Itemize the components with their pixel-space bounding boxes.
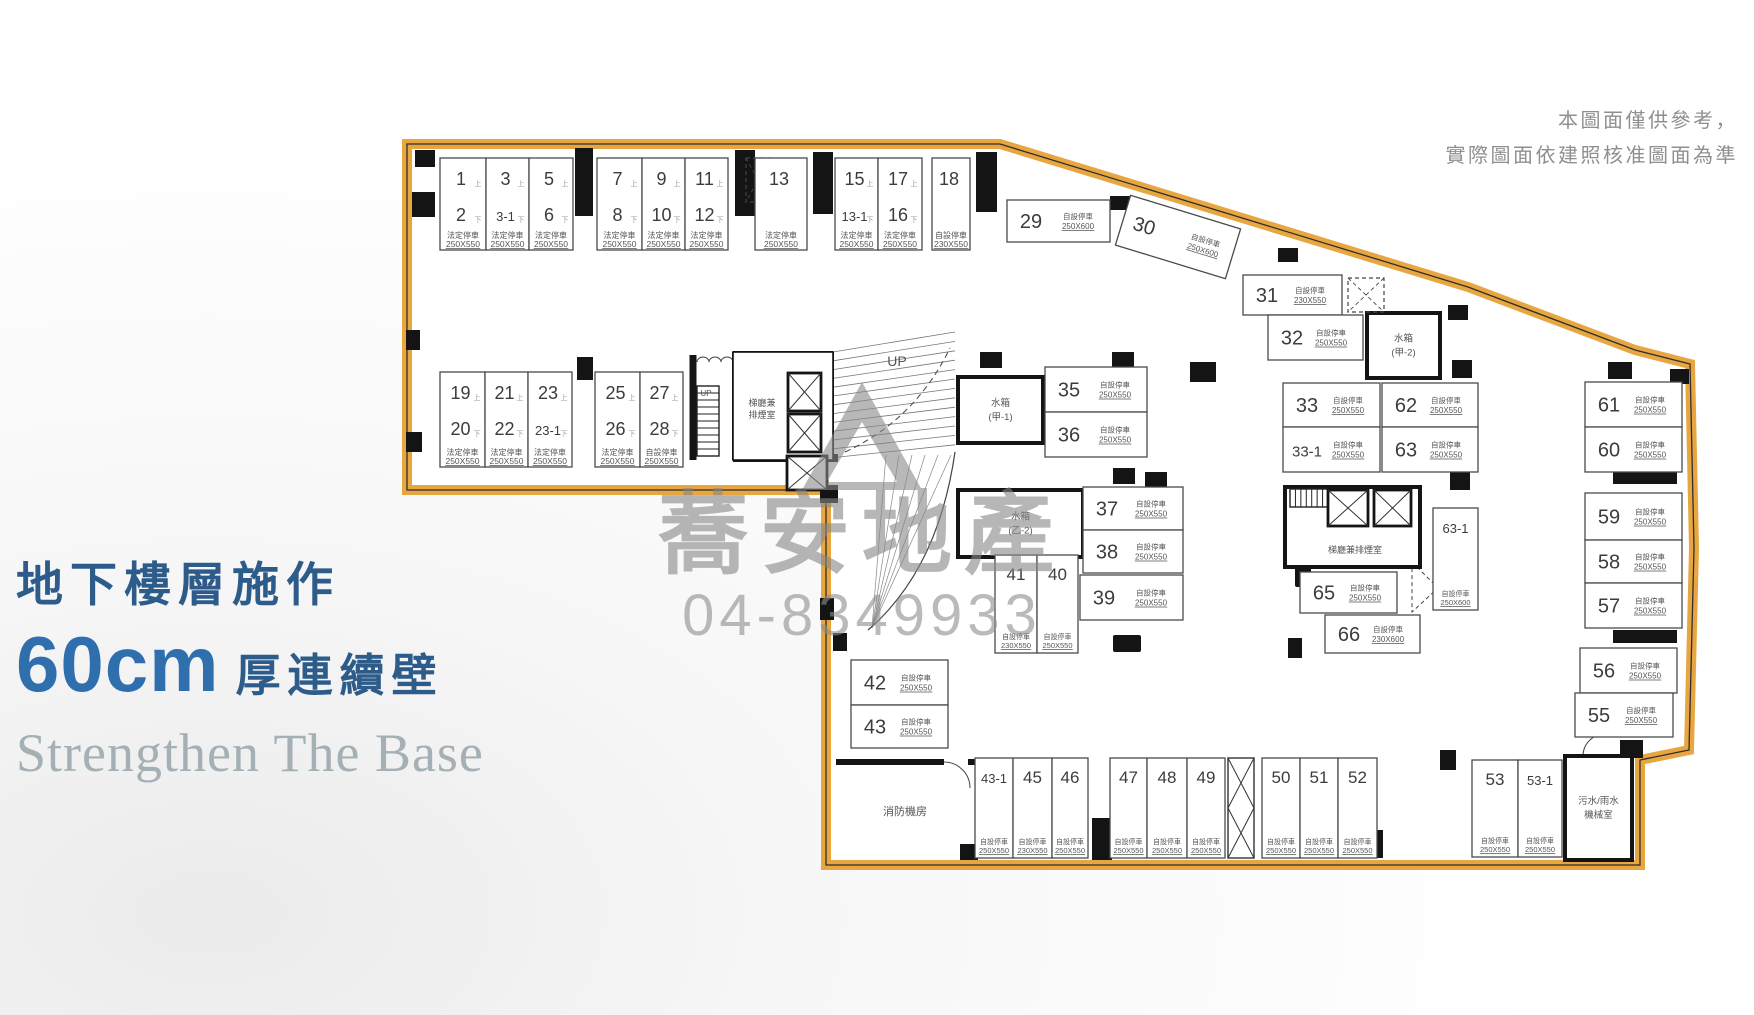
- svg-text:自設停車: 自設停車: [1635, 395, 1665, 405]
- svg-text:250X550: 250X550: [883, 239, 917, 249]
- svg-text:61: 61: [1598, 395, 1620, 417]
- stall-9-10: 9上10下法定停車250X550: [642, 158, 685, 250]
- svg-text:自設停車: 自設停車: [1063, 211, 1093, 221]
- room-label: 機械室: [1584, 809, 1613, 821]
- stall-5-6: 5上6下法定停車250X550: [529, 158, 573, 250]
- room-label: (甲-2): [1391, 348, 1415, 359]
- room-label: (甲-1): [988, 412, 1012, 423]
- svg-text:250X550: 250X550: [534, 239, 568, 249]
- svg-text:230X550: 230X550: [934, 239, 968, 249]
- svg-text:自設停車: 自設停車: [1044, 632, 1072, 641]
- stall-49: 49自設停車250X550: [1187, 758, 1225, 858]
- svg-text:上: 上: [474, 393, 481, 402]
- svg-text:上: 上: [475, 179, 482, 188]
- pillar: [735, 150, 755, 216]
- equipment-icon: [1113, 635, 1141, 652]
- svg-text:42: 42: [864, 673, 886, 695]
- stall-53: 53自設停車250X550: [1472, 760, 1518, 857]
- stall-46: 46自設停車250X550: [1052, 758, 1088, 858]
- svg-text:25: 25: [605, 383, 625, 403]
- svg-text:8: 8: [612, 205, 622, 225]
- svg-text:10: 10: [651, 205, 671, 225]
- stall-7-8: 7上8下法定停車250X550: [597, 158, 642, 250]
- svg-text:250X550: 250X550: [445, 456, 479, 466]
- svg-text:下: 下: [911, 216, 918, 224]
- svg-text:自設停車: 自設停車: [1136, 499, 1166, 509]
- svg-text:250X550: 250X550: [1266, 846, 1296, 855]
- stall-21-22: 21上22下法定停車250X550: [485, 372, 528, 467]
- svg-text:38: 38: [1096, 542, 1118, 564]
- room-label: 污水/雨水: [1578, 795, 1619, 807]
- svg-text:250X550: 250X550: [1304, 846, 1334, 855]
- svg-text:33-1: 33-1: [1292, 444, 1322, 461]
- svg-text:16: 16: [888, 205, 908, 225]
- stall-35: 35自設停車250X550: [1045, 367, 1147, 412]
- svg-text:上: 上: [518, 179, 525, 188]
- svg-text:下: 下: [717, 216, 724, 224]
- svg-text:51: 51: [1310, 768, 1329, 787]
- pillar: [1448, 305, 1468, 320]
- svg-text:自設停車: 自設停車: [1442, 589, 1470, 598]
- svg-text:上: 上: [629, 393, 636, 402]
- stall-61: 61自設停車250X550: [1585, 382, 1682, 427]
- svg-text:自設停車: 自設停車: [980, 837, 1008, 846]
- stall-18: 18自設停車230X550: [932, 158, 970, 250]
- svg-text:250X550: 250X550: [1135, 510, 1168, 519]
- plan-label: 排煙室: [748, 409, 775, 420]
- stall-60: 60自設停車250X550: [1585, 427, 1682, 472]
- pillar: [1190, 362, 1216, 382]
- svg-text:63: 63: [1395, 440, 1417, 462]
- svg-text:250X550: 250X550: [1113, 846, 1143, 855]
- svg-text:自設停車: 自設停車: [1115, 837, 1143, 846]
- svg-text:250X550: 250X550: [1525, 845, 1555, 854]
- svg-text:自設停車: 自設停車: [901, 717, 931, 727]
- pillar: [575, 148, 593, 216]
- headline-line2: 60cm 厚連續壁: [16, 619, 484, 710]
- svg-text:250X550: 250X550: [1055, 846, 1085, 855]
- stall-32: 32自設停車250X550: [1268, 315, 1363, 360]
- svg-text:250X550: 250X550: [602, 239, 636, 249]
- svg-text:45: 45: [1023, 768, 1042, 787]
- svg-text:13: 13: [769, 169, 789, 189]
- svg-text:15: 15: [844, 169, 864, 189]
- pillar: [1113, 468, 1135, 484]
- svg-text:自設停車: 自設停車: [1305, 837, 1333, 846]
- stall-66: 66自設停車230X600: [1325, 615, 1420, 653]
- pillar: [412, 192, 435, 217]
- stall-33-1: 33-1自設停車250X550: [1283, 427, 1380, 472]
- svg-text:41: 41: [1007, 565, 1026, 584]
- svg-text:自設停車: 自設停車: [1635, 440, 1665, 450]
- elevator-shaft: [788, 414, 821, 452]
- svg-text:自設停車: 自設停車: [1431, 395, 1461, 405]
- svg-text:31: 31: [1256, 285, 1278, 307]
- svg-text:21: 21: [494, 383, 514, 403]
- svg-text:26: 26: [605, 419, 625, 439]
- svg-text:1: 1: [456, 169, 466, 189]
- pillar: [415, 150, 435, 167]
- svg-text:上: 上: [517, 393, 524, 402]
- svg-text:上: 上: [672, 393, 679, 402]
- svg-text:250X550: 250X550: [1315, 339, 1348, 348]
- pillar: [1450, 472, 1470, 490]
- svg-text:18: 18: [939, 169, 959, 189]
- svg-text:46: 46: [1061, 768, 1080, 787]
- svg-text:自設停車: 自設停車: [1333, 395, 1363, 405]
- svg-text:下: 下: [518, 216, 525, 224]
- svg-text:65: 65: [1313, 583, 1335, 605]
- stall-42: 42自設停車250X550: [851, 660, 948, 705]
- plan-label: 梯廳兼排煙室: [1328, 544, 1382, 555]
- svg-text:下: 下: [474, 430, 481, 438]
- svg-text:250X550: 250X550: [1634, 451, 1667, 460]
- svg-text:250X550: 250X550: [1135, 553, 1168, 562]
- svg-text:250X600: 250X600: [1440, 598, 1470, 607]
- svg-text:自設停車: 自設停車: [1295, 285, 1325, 295]
- stall-57: 57自設停車250X550: [1585, 583, 1682, 628]
- svg-text:下: 下: [672, 430, 679, 438]
- stall-15-13-1: 15上13-1下法定停車250X550: [835, 158, 878, 250]
- svg-text:250X550: 250X550: [1634, 518, 1667, 527]
- svg-text:自設停車: 自設停車: [1630, 661, 1660, 671]
- svg-text:250X550: 250X550: [1042, 641, 1072, 650]
- plan-label: UP: [887, 353, 906, 369]
- stall-65: 65自設停車250X550: [1300, 572, 1397, 613]
- svg-text:250X550: 250X550: [1135, 599, 1168, 608]
- room-label: 水箱: [1394, 333, 1413, 345]
- headline-line1: 地下樓層施作: [16, 546, 484, 615]
- svg-text:250X550: 250X550: [1152, 846, 1182, 855]
- svg-text:上: 上: [562, 179, 569, 188]
- svg-text:230X550: 230X550: [1017, 846, 1047, 855]
- svg-text:自設停車: 自設停車: [1267, 837, 1295, 846]
- svg-text:下: 下: [517, 430, 524, 438]
- stall-11-12: 11上12下法定停車250X550: [685, 158, 728, 250]
- stall-50: 50自設停車250X550: [1262, 758, 1300, 858]
- svg-text:19: 19: [450, 383, 470, 403]
- pillar: [1440, 750, 1456, 770]
- svg-text:自設停車: 自設停車: [1526, 836, 1554, 845]
- svg-text:48: 48: [1158, 768, 1177, 787]
- svg-text:自設停車: 自設停車: [1373, 624, 1403, 634]
- svg-text:自設停車: 自設停車: [1316, 328, 1346, 338]
- headline-wall-text: 厚連續壁: [236, 639, 444, 704]
- stall-45: 45自設停車230X550: [1013, 758, 1052, 858]
- svg-text:自設停車: 自設停車: [1002, 632, 1030, 641]
- stall-47: 47自設停車250X550: [1110, 758, 1147, 858]
- svg-text:自設停車: 自設停車: [1056, 837, 1084, 846]
- svg-text:自設停車: 自設停車: [1136, 542, 1166, 552]
- stall-13: 13法定停車250X550: [755, 158, 807, 250]
- elevator-shaft: [787, 456, 827, 490]
- svg-text:自設停車: 自設停車: [901, 673, 931, 683]
- svg-text:250X600: 250X600: [1062, 222, 1095, 231]
- stall-52: 52自設停車250X550: [1338, 758, 1377, 858]
- svg-text:自設停車: 自設停車: [1635, 507, 1665, 517]
- stall-43-1: 43-1自設停車250X550: [975, 758, 1013, 858]
- svg-text:250X550: 250X550: [1191, 846, 1221, 855]
- stall-29: 29自設停車250X600: [1007, 200, 1110, 242]
- slide: 水箱(甲-1)水箱(乙-2)水箱(甲-2)污水/雨水機械室1上2下法定停車250…: [0, 0, 1754, 1015]
- stall-41: 41自設停車230X550: [995, 555, 1037, 653]
- svg-text:250X550: 250X550: [1625, 716, 1658, 725]
- svg-text:250X550: 250X550: [533, 456, 567, 466]
- disclaimer-line1: 本圖面僅供參考，: [1446, 104, 1739, 139]
- stall-38: 38自設停車250X550: [1083, 530, 1183, 573]
- svg-text:53-1: 53-1: [1527, 773, 1553, 788]
- svg-text:上: 上: [561, 393, 568, 402]
- svg-text:12: 12: [694, 205, 714, 225]
- room: 水箱(乙-2): [958, 490, 1083, 557]
- svg-text:下: 下: [631, 216, 638, 224]
- pillar: [813, 152, 833, 214]
- svg-text:230X600: 230X600: [1372, 635, 1405, 644]
- pillar: [1278, 248, 1298, 262]
- svg-text:3-1: 3-1: [496, 209, 515, 224]
- stall-39: 39自設停車250X550: [1080, 575, 1183, 620]
- svg-text:63-1: 63-1: [1442, 521, 1468, 536]
- svg-text:自設停車: 自設停車: [1153, 837, 1181, 846]
- stall-1-2: 1上2下法定停車250X550: [440, 158, 486, 250]
- svg-text:250X550: 250X550: [1349, 594, 1382, 603]
- pillar: [577, 357, 593, 380]
- svg-text:6: 6: [544, 205, 554, 225]
- stall-37: 37自設停車250X550: [1083, 487, 1183, 530]
- stall-17-16: 17上16下法定停車250X550: [878, 158, 922, 250]
- pillar: [980, 352, 1002, 368]
- svg-text:自設停車: 自設停車: [1626, 705, 1656, 715]
- elevator-shaft: [1374, 490, 1411, 526]
- svg-text:250X550: 250X550: [644, 456, 678, 466]
- svg-text:20: 20: [450, 419, 470, 439]
- svg-text:250X550: 250X550: [600, 456, 634, 466]
- svg-text:49: 49: [1197, 768, 1216, 787]
- pillar: [976, 152, 997, 212]
- svg-text:230X550: 230X550: [1294, 296, 1327, 305]
- plan-label: 消防機房: [883, 804, 927, 818]
- svg-text:自設停車: 自設停車: [1136, 588, 1166, 598]
- pillar: [1112, 352, 1134, 368]
- svg-text:250X550: 250X550: [1332, 451, 1365, 460]
- svg-text:17: 17: [888, 169, 908, 189]
- svg-text:22: 22: [494, 419, 514, 439]
- room-label: 水箱: [991, 397, 1010, 409]
- stall-62: 62自設停車250X550: [1382, 383, 1478, 427]
- braced-column: [1228, 758, 1254, 858]
- svg-text:250X550: 250X550: [900, 684, 933, 693]
- svg-text:250X550: 250X550: [1430, 451, 1463, 460]
- svg-text:7: 7: [612, 169, 622, 189]
- svg-text:11: 11: [695, 169, 714, 189]
- stall-3-3-1: 3上3-1下法定停車250X550: [486, 158, 529, 250]
- stall-51: 51自設停車250X550: [1300, 758, 1338, 858]
- svg-text:50: 50: [1272, 768, 1291, 787]
- svg-text:58: 58: [1598, 552, 1620, 574]
- svg-text:57: 57: [1598, 596, 1620, 618]
- elevator-shaft: [1328, 490, 1368, 526]
- svg-text:23-1: 23-1: [535, 423, 561, 438]
- svg-text:250X550: 250X550: [839, 239, 873, 249]
- stall-36: 36自設停車250X550: [1045, 412, 1147, 457]
- svg-text:43: 43: [864, 717, 886, 739]
- svg-text:250X550: 250X550: [1332, 406, 1365, 415]
- svg-text:250X550: 250X550: [1629, 672, 1662, 681]
- disclaimer-notice: 本圖面僅供參考， 實際圖面依建照核准圖面為準: [1446, 104, 1739, 174]
- pillar: [1452, 360, 1472, 378]
- svg-text:32: 32: [1281, 328, 1303, 350]
- svg-text:下: 下: [674, 216, 681, 224]
- svg-text:59: 59: [1598, 507, 1620, 529]
- stall-63-1: 63-1自設停車250X600: [1433, 508, 1478, 610]
- headline: 地下樓層施作 60cm 厚連續壁 Strengthen The Base: [16, 546, 484, 784]
- svg-text:43-1: 43-1: [981, 771, 1007, 786]
- svg-text:自設停車: 自設停車: [1019, 837, 1047, 846]
- svg-text:56: 56: [1593, 661, 1615, 683]
- svg-text:39: 39: [1093, 588, 1115, 610]
- svg-text:250X550: 250X550: [979, 846, 1009, 855]
- svg-text:下: 下: [475, 216, 482, 224]
- pillar: [406, 432, 422, 452]
- stall-19-20: 19上20下法定停車250X550: [440, 372, 485, 467]
- elevator-shaft: [788, 373, 821, 411]
- stall-48: 48自設停車250X550: [1147, 758, 1187, 858]
- svg-text:29: 29: [1020, 211, 1042, 233]
- pillar: [1613, 472, 1677, 484]
- svg-text:28: 28: [649, 419, 669, 439]
- svg-text:自設停車: 自設停車: [1481, 836, 1509, 845]
- svg-text:下: 下: [562, 216, 569, 224]
- svg-text:自設停車: 自設停車: [1100, 380, 1130, 390]
- svg-text:250X550: 250X550: [900, 728, 933, 737]
- stall-56: 56自設停車250X550: [1580, 648, 1677, 693]
- stall-40: 40自設停車250X550: [1037, 555, 1078, 653]
- svg-text:37: 37: [1096, 499, 1118, 521]
- plan-label: 梯廳兼: [748, 397, 775, 408]
- svg-text:自設停車: 自設停車: [1192, 837, 1220, 846]
- svg-text:250X550: 250X550: [1342, 846, 1372, 855]
- pillar: [833, 633, 847, 651]
- svg-text:上: 上: [867, 179, 874, 188]
- pillar: [406, 330, 420, 350]
- svg-text:250X550: 250X550: [646, 239, 680, 249]
- svg-text:55: 55: [1588, 705, 1610, 727]
- svg-text:35: 35: [1058, 380, 1080, 402]
- room-label: (乙-2): [1008, 526, 1032, 537]
- svg-text:52: 52: [1348, 768, 1367, 787]
- svg-text:230X550: 230X550: [1001, 641, 1031, 650]
- svg-text:23: 23: [538, 383, 558, 403]
- svg-text:33: 33: [1296, 395, 1318, 417]
- svg-text:13-1: 13-1: [841, 209, 867, 224]
- svg-text:2: 2: [456, 205, 466, 225]
- room: 污水/雨水機械室: [1565, 756, 1632, 860]
- pillar: [1613, 630, 1677, 643]
- svg-text:下: 下: [629, 430, 636, 438]
- svg-text:自設停車: 自設停車: [1350, 583, 1380, 593]
- svg-text:66: 66: [1338, 624, 1360, 646]
- disclaimer-line2: 實際圖面依建照核准圖面為準: [1446, 139, 1739, 174]
- stall-53-1: 53-1自設停車250X550: [1518, 760, 1562, 857]
- headline-60cm: 60cm: [16, 619, 220, 710]
- svg-text:5: 5: [544, 169, 554, 189]
- svg-text:47: 47: [1119, 768, 1138, 787]
- svg-text:250X550: 250X550: [446, 239, 480, 249]
- svg-text:36: 36: [1058, 425, 1080, 447]
- stall-55: 55自設停車250X550: [1575, 693, 1673, 737]
- svg-text:下: 下: [867, 216, 874, 224]
- pillar: [1608, 362, 1632, 379]
- pillar: [1288, 638, 1302, 658]
- stall-23-23-1: 23上23-1下法定停車250X550: [528, 372, 572, 467]
- tagline-english: Strengthen The Base: [16, 722, 484, 784]
- stall-27-28: 27上28下自設停車250X550: [640, 372, 683, 467]
- svg-text:250X550: 250X550: [1634, 406, 1667, 415]
- svg-text:250X550: 250X550: [1634, 563, 1667, 572]
- svg-text:上: 上: [717, 179, 724, 188]
- pillar: [820, 598, 834, 620]
- stall-58: 58自設停車250X550: [1585, 540, 1682, 583]
- svg-text:53: 53: [1486, 770, 1505, 789]
- svg-text:250X550: 250X550: [1634, 607, 1667, 616]
- svg-text:自設停車: 自設停車: [1431, 440, 1461, 450]
- stall-25-26: 25上26下法定停車250X550: [595, 372, 640, 467]
- stall-63: 63自設停車250X550: [1382, 427, 1478, 472]
- svg-text:250X550: 250X550: [489, 456, 523, 466]
- svg-text:60: 60: [1598, 440, 1620, 462]
- svg-text:62: 62: [1395, 395, 1417, 417]
- svg-text:250X550: 250X550: [1480, 845, 1510, 854]
- room: 水箱(甲-2): [1367, 313, 1440, 378]
- stall-31: 31自設停車230X550: [1243, 275, 1342, 315]
- svg-text:40: 40: [1048, 565, 1067, 584]
- stall-43: 43自設停車250X550: [851, 705, 948, 748]
- svg-text:上: 上: [911, 179, 918, 188]
- plan-label: UP: [700, 389, 711, 398]
- svg-text:自設停車: 自設停車: [1344, 837, 1372, 846]
- svg-text:27: 27: [649, 383, 669, 403]
- svg-text:上: 上: [631, 179, 638, 188]
- svg-text:250X550: 250X550: [1099, 391, 1132, 400]
- svg-text:上: 上: [674, 179, 681, 188]
- svg-text:9: 9: [656, 169, 666, 189]
- svg-text:250X550: 250X550: [1099, 436, 1132, 445]
- room: 水箱(甲-1): [958, 377, 1043, 443]
- room-label: 水箱: [1011, 511, 1030, 523]
- svg-text:3: 3: [500, 169, 510, 189]
- stairs: [1290, 489, 1328, 507]
- svg-text:250X550: 250X550: [764, 239, 798, 249]
- svg-text:自設停車: 自設停車: [1635, 552, 1665, 562]
- stall-59: 59自設停車250X550: [1585, 493, 1682, 540]
- svg-text:250X550: 250X550: [1430, 406, 1463, 415]
- pillar: [1092, 818, 1112, 860]
- stall-33: 33自設停車250X550: [1283, 383, 1380, 427]
- svg-text:自設停車: 自設停車: [1100, 425, 1130, 435]
- svg-text:自設停車: 自設停車: [1635, 596, 1665, 606]
- svg-text:250X550: 250X550: [490, 239, 524, 249]
- svg-text:下: 下: [561, 430, 568, 438]
- svg-text:250X550: 250X550: [689, 239, 723, 249]
- svg-text:自設停車: 自設停車: [1333, 440, 1363, 450]
